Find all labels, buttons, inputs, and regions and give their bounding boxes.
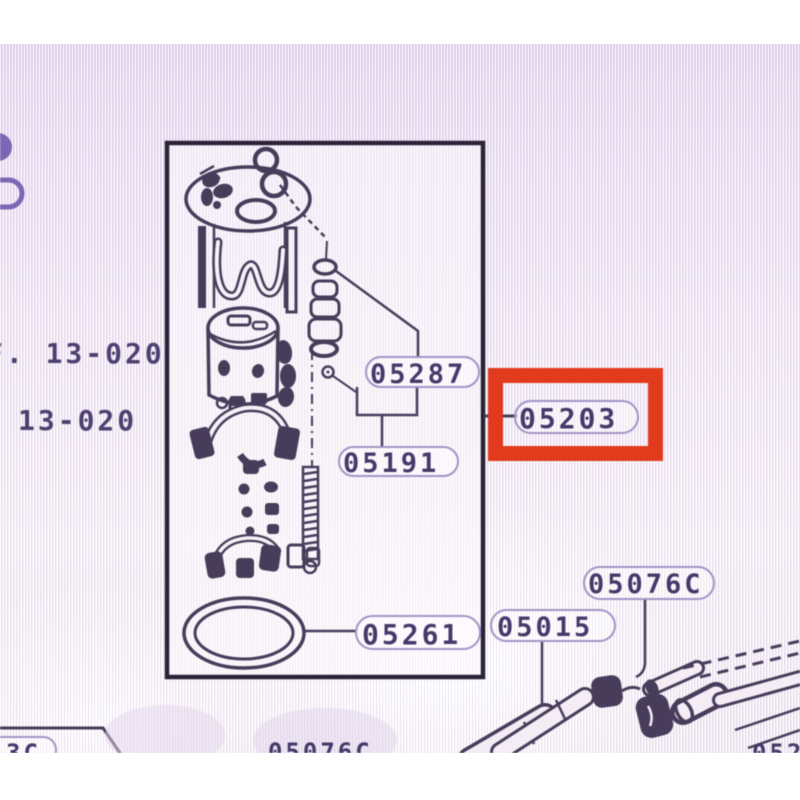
- hose-fitting-dark-1: [590, 674, 624, 709]
- left-edge-oval: [0, 180, 22, 207]
- partial-label-bottom-left: 3C: [0, 737, 56, 753]
- hose-fitting-dark-2: [633, 692, 675, 741]
- left-edge-blob: [0, 133, 12, 161]
- part-label-05191: 05191: [339, 447, 458, 479]
- exploded-parts-diagram: 05287 05191 05261 05203 05076C 05015: [0, 44, 800, 753]
- svg-text:05261: 05261: [362, 618, 461, 651]
- part-label-05076C: 05076C: [584, 567, 714, 600]
- part-label-05015: 05015: [491, 610, 615, 643]
- glare-blob-left: [105, 705, 225, 753]
- left-support-rod: [198, 226, 206, 308]
- partial-label-bottom-center: 05076C: [268, 738, 373, 753]
- svg-text:05203: 05203: [519, 402, 618, 435]
- svg-text:05076C: 05076C: [588, 569, 704, 600]
- margin-ref-line1: F. 13-020: [0, 337, 165, 370]
- part-label-05287: 05287: [366, 357, 479, 390]
- hose-assembly: [470, 641, 800, 753]
- parts-catalog-photo: { "margin": { "ref_line1": "F. 13-020", …: [0, 0, 800, 800]
- svg-text:05191: 05191: [343, 448, 439, 479]
- part-label-05203: 05203: [515, 401, 638, 435]
- svg-text:05076C: 05076C: [268, 738, 373, 753]
- svg-text:3C: 3C: [6, 739, 41, 753]
- svg-text:05015: 05015: [497, 612, 593, 643]
- diagram-frame: [167, 143, 483, 677]
- svg-text:052: 052: [752, 739, 800, 753]
- partial-label-bottom-right: 052: [752, 739, 800, 753]
- part-label-05261: 05261: [356, 616, 480, 651]
- margin-ref-line2: 13-020: [18, 404, 137, 437]
- screen-photo-area: 05287 05191 05261 05203 05076C 05015: [0, 44, 800, 753]
- svg-text:05287: 05287: [370, 359, 466, 390]
